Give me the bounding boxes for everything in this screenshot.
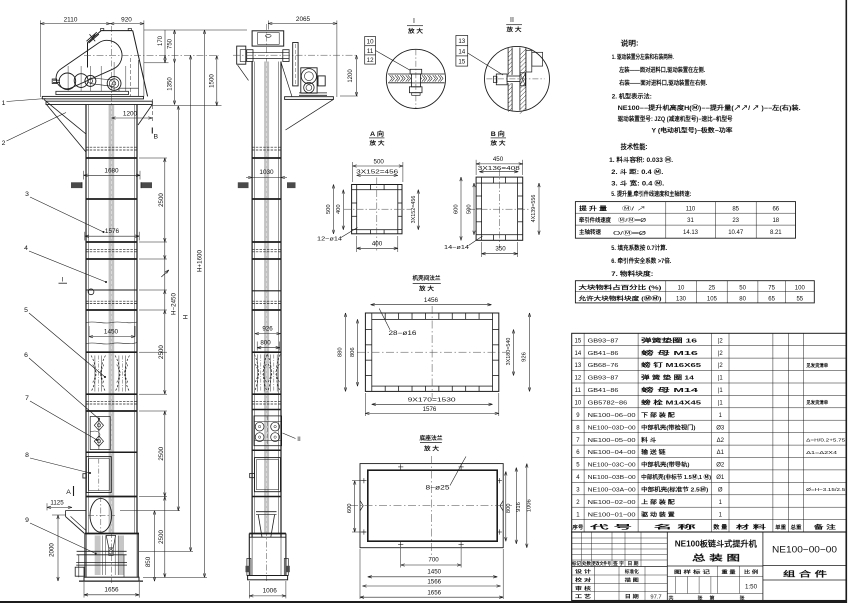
svg-text:重 量: 重 量 xyxy=(722,569,737,576)
svg-text:中部机壳(带导轨): 中部机壳(带导轨) xyxy=(641,461,690,469)
svg-text:螃 钉 M16X65: 螃 钉 M16X65 xyxy=(641,361,701,369)
svg-text:第: 第 xyxy=(710,594,715,601)
svg-text:螃 栓 M14X45: 螃 栓 M14X45 xyxy=(641,399,701,407)
svg-text:名 称: 名 称 xyxy=(654,523,697,531)
svg-text:中部机壳(标准节 2.5Ⓜ): 中部机壳(标准节 2.5Ⓜ) xyxy=(641,485,708,493)
svg-text:Y (电动机型号)−极数−功率: Y (电动机型号)−极数−功率 xyxy=(652,127,733,135)
svg-text:|2: |2 xyxy=(718,363,724,369)
svg-text:代 号: 代 号 xyxy=(587,523,634,531)
svg-text:8: 8 xyxy=(25,452,29,459)
svg-text:标记: 标记 xyxy=(571,560,581,567)
svg-text:3: 3 xyxy=(25,191,29,198)
svg-text:GB93−87: GB93−87 xyxy=(588,338,619,344)
svg-text:10.47: 10.47 xyxy=(728,230,744,236)
svg-text:NE100−06−00: NE100−06−00 xyxy=(588,413,636,419)
svg-text:1. 料斗容积: 0.033 Ⓜ.: 1. 料斗容积: 0.033 Ⓜ. xyxy=(609,156,673,164)
svg-text:500: 500 xyxy=(466,204,472,214)
svg-text:926: 926 xyxy=(522,352,528,362)
svg-text:II: II xyxy=(510,17,514,24)
svg-text:放 大: 放 大 xyxy=(489,139,505,147)
svg-text:14: 14 xyxy=(575,351,582,357)
svg-text:提 升 量: 提 升 量 xyxy=(579,204,607,212)
svg-text:B: B xyxy=(154,134,159,141)
svg-text:50: 50 xyxy=(739,285,746,291)
svg-text:500: 500 xyxy=(374,159,385,166)
svg-text:9: 9 xyxy=(25,517,29,524)
svg-text:500: 500 xyxy=(326,204,332,214)
svg-text:NE100−03A−00: NE100−03A−00 xyxy=(588,487,636,493)
svg-text:13: 13 xyxy=(458,38,465,45)
svg-text:底座法兰: 底座法兰 xyxy=(420,434,443,442)
svg-text:描 图: 描 图 xyxy=(625,577,639,584)
svg-text:螃 母 M16: 螃 母 M16 xyxy=(641,349,698,357)
svg-text:1500: 1500 xyxy=(209,74,216,88)
svg-text:1006: 1006 xyxy=(527,499,533,512)
svg-text:NE100−01−00: NE100−01−00 xyxy=(588,512,636,518)
svg-text:输 送 链: 输 送 链 xyxy=(641,448,666,456)
svg-text:总重: 总重 xyxy=(791,523,803,531)
svg-text:数 量: 数 量 xyxy=(713,523,728,531)
svg-text:NE100板链斗式提升机: NE100板链斗式提升机 xyxy=(675,539,757,549)
svg-text:2500: 2500 xyxy=(158,345,165,359)
svg-text:设 计: 设 计 xyxy=(575,568,591,575)
svg-text:2500: 2500 xyxy=(158,446,165,460)
svg-text:75: 75 xyxy=(768,285,775,291)
svg-text:大块物料占百分比 (%): 大块物料占百分比 (%) xyxy=(579,283,662,291)
svg-text:10: 10 xyxy=(367,39,374,46)
svg-text:I: I xyxy=(413,18,415,25)
svg-text:B 向: B 向 xyxy=(491,130,505,138)
svg-text:料 斗: 料 斗 xyxy=(641,436,657,444)
svg-text:130: 130 xyxy=(676,296,687,302)
svg-text:螃 母 M14: 螃 母 M14 xyxy=(641,386,700,394)
svg-text:Δ=H/0.2+5.75: Δ=H/0.2+5.75 xyxy=(806,437,845,443)
svg-text:1. 驱动装置分左装和右装两种.: 1. 驱动装置分左装和右装两种. xyxy=(612,53,674,61)
svg-text:350: 350 xyxy=(495,245,506,252)
svg-text:允许大块物料块度 (ⓂⓂ): 允许大块物料块度 (ⓂⓂ) xyxy=(577,294,662,302)
svg-text:技术性能:: 技术性能: xyxy=(621,142,648,151)
svg-text:I: I xyxy=(62,277,64,284)
svg-text:Ⓜ/ ↗: Ⓜ/ ↗ xyxy=(622,204,646,212)
svg-text:65: 65 xyxy=(768,296,775,302)
svg-text:更改文件号: 更改文件号 xyxy=(592,560,611,567)
svg-text:A 向: A 向 xyxy=(370,130,384,138)
svg-text:3X180=540: 3X180=540 xyxy=(506,338,512,366)
svg-text:Δ2: Δ2 xyxy=(717,438,725,444)
svg-text:3. 斗 宽: 0.4 Ⓜ.: 3. 斗 宽: 0.4 Ⓜ. xyxy=(611,180,664,188)
svg-text:55: 55 xyxy=(796,296,803,302)
svg-text:工 艺: 工 艺 xyxy=(575,593,591,600)
svg-text:2500: 2500 xyxy=(158,530,165,544)
svg-text:25: 25 xyxy=(709,285,716,291)
svg-text:3X152=456: 3X152=456 xyxy=(356,169,398,175)
svg-text:110: 110 xyxy=(686,206,696,212)
svg-text:15: 15 xyxy=(458,59,465,66)
svg-text:Ø2: Ø2 xyxy=(716,463,725,469)
svg-text:组 合 件: 组 合 件 xyxy=(783,570,828,579)
svg-text:日 期: 日 期 xyxy=(625,593,639,600)
svg-text:|1: |1 xyxy=(718,401,724,407)
svg-text:3X136=408: 3X136=408 xyxy=(478,166,520,172)
svg-text:NE100−−提升机高度H(Ⓜ)−−提升量(↗↗/ ↗: NE100−−提升机高度H(Ⓜ)−−提升量(↗↗/ ↗ )−−左(右)装. xyxy=(618,104,801,112)
svg-text:600: 600 xyxy=(347,503,353,513)
svg-text:放 大: 放 大 xyxy=(368,139,384,147)
svg-text:1030: 1030 xyxy=(259,169,274,176)
svg-text:2: 2 xyxy=(2,140,6,147)
svg-text:2000: 2000 xyxy=(49,543,56,557)
svg-text:1456: 1456 xyxy=(424,297,439,304)
svg-text:28−ø16: 28−ø16 xyxy=(389,331,418,337)
svg-text:总 装 图: 总 装 图 xyxy=(692,553,740,563)
svg-text:H−2450: H−2450 xyxy=(170,293,177,315)
svg-text:放 大: 放 大 xyxy=(505,26,521,34)
svg-text:NE100−03C−00: NE100−03C−00 xyxy=(588,463,636,469)
svg-text:驱动装置型号: JZQ (减速机型号)−速比−机型号: 驱动装置型号: JZQ (减速机型号)−速比−机型号 xyxy=(618,115,733,123)
svg-text:II: II xyxy=(297,436,301,443)
svg-text:张: 张 xyxy=(698,594,703,601)
svg-text:机壳间法兰: 机壳间法兰 xyxy=(413,274,441,282)
svg-text:2. 斗 距: 0.4 Ⓜ.: 2. 斗 距: 0.4 Ⓜ. xyxy=(611,168,663,176)
svg-text:GB68−76: GB68−76 xyxy=(588,363,619,369)
svg-text:7. 物料块度:: 7. 物料块度: xyxy=(611,270,653,278)
svg-text:2. 机型表示法:: 2. 机型表示法: xyxy=(612,92,652,100)
svg-text:926: 926 xyxy=(262,325,273,332)
svg-text:见发货清单: 见发货清单 xyxy=(806,399,828,406)
svg-text:170: 170 xyxy=(158,35,164,46)
svg-text:600: 600 xyxy=(454,204,460,214)
svg-text:1450: 1450 xyxy=(427,569,441,576)
svg-text:10: 10 xyxy=(575,401,582,407)
svg-text:下 部 装 配: 下 部 装 配 xyxy=(641,411,675,419)
svg-text:14−ø14: 14−ø14 xyxy=(444,245,470,251)
svg-text:97.7: 97.7 xyxy=(650,594,661,600)
svg-text:1656: 1656 xyxy=(104,586,119,593)
svg-text:NE100−03D−00: NE100−03D−00 xyxy=(588,425,636,431)
svg-text:1200: 1200 xyxy=(348,69,354,83)
svg-text:标准化: 标准化 xyxy=(624,568,639,575)
svg-text:31: 31 xyxy=(687,218,694,224)
svg-text:H+1600: H+1600 xyxy=(196,250,203,272)
svg-text:1:50: 1:50 xyxy=(745,584,758,591)
svg-text:23: 23 xyxy=(732,218,739,224)
svg-text:比 例: 比 例 xyxy=(744,569,759,576)
svg-text:GB5782−86: GB5782−86 xyxy=(588,401,628,407)
svg-text:NE100−04−00: NE100−04−00 xyxy=(588,450,636,456)
svg-text:3X152=456: 3X152=456 xyxy=(411,196,417,224)
svg-text:GB93−87: GB93−87 xyxy=(588,376,619,382)
svg-text:放 大: 放 大 xyxy=(418,284,434,292)
svg-text:7: 7 xyxy=(25,395,29,402)
svg-text:700: 700 xyxy=(428,557,439,564)
svg-text:750: 750 xyxy=(168,38,174,49)
svg-text:2065: 2065 xyxy=(296,16,311,23)
svg-text:850: 850 xyxy=(145,556,152,567)
svg-text:审 核: 审 核 xyxy=(575,585,591,592)
svg-text:驱 动 装 置: 驱 动 装 置 xyxy=(641,510,675,518)
svg-text:800: 800 xyxy=(506,503,512,513)
svg-text:2500: 2500 xyxy=(158,193,165,207)
svg-text:105: 105 xyxy=(707,296,718,302)
svg-text:1006: 1006 xyxy=(263,588,278,595)
svg-text:|1: |1 xyxy=(718,388,724,394)
svg-text:4X139=556: 4X139=556 xyxy=(531,195,537,223)
svg-text:1680: 1680 xyxy=(104,168,119,175)
svg-text:800: 800 xyxy=(260,340,271,347)
svg-text:A: A xyxy=(66,489,71,496)
svg-text:1200: 1200 xyxy=(123,111,138,118)
svg-text:NE100−03B−00: NE100−03B−00 xyxy=(588,475,636,481)
svg-text:13: 13 xyxy=(575,363,582,369)
svg-text:450: 450 xyxy=(493,156,504,163)
svg-text:880: 880 xyxy=(338,347,344,357)
svg-text:1350: 1350 xyxy=(168,77,174,91)
svg-text:校 对: 校 对 xyxy=(575,577,591,584)
svg-text:8−ø25: 8−ø25 xyxy=(426,485,451,491)
svg-text:85: 85 xyxy=(732,206,739,212)
svg-text:Ø1: Ø1 xyxy=(716,475,725,481)
svg-text:|1: |1 xyxy=(718,376,724,382)
svg-text:12−ø14: 12−ø14 xyxy=(317,237,343,243)
svg-text:14: 14 xyxy=(458,48,465,55)
svg-text:14.13: 14.13 xyxy=(683,230,699,236)
svg-text:806: 806 xyxy=(350,347,356,357)
svg-text:NE100−05−00: NE100−05−00 xyxy=(588,438,636,444)
svg-text:1656: 1656 xyxy=(427,589,441,596)
svg-text:左装——面对进料口,驱动装置在左侧.: 左装——面对进料口,驱动装置在左侧. xyxy=(618,66,705,74)
svg-text:1125: 1125 xyxy=(50,500,64,507)
svg-text:右装——面对进料口,驱动装置在右侧.: 右装——面对进料口,驱动装置在右侧. xyxy=(618,79,707,87)
svg-text:图 样 标 记: 图 样 标 记 xyxy=(674,569,711,576)
svg-text:12: 12 xyxy=(367,57,374,64)
svg-text:Ⓜ/Ⓜ═Ø: Ⓜ/Ⓜ═Ø xyxy=(618,216,647,224)
svg-text:中部机壳(带检视门): 中部机壳(带检视门) xyxy=(641,423,696,431)
svg-text:牵引件线速度: 牵引件线速度 xyxy=(579,216,611,224)
svg-text:见发货清单: 见发货清单 xyxy=(806,362,828,369)
svg-text:GB41−86: GB41−86 xyxy=(588,388,619,394)
svg-text:Δ1: Δ1 xyxy=(717,450,725,456)
svg-text:80: 80 xyxy=(739,296,746,302)
svg-text:10: 10 xyxy=(678,285,685,291)
svg-text:5: 5 xyxy=(24,307,28,314)
svg-text:O/Ⓜ═Ø: O/Ⓜ═Ø xyxy=(613,229,647,237)
svg-text:1566: 1566 xyxy=(427,578,441,585)
svg-text:5. 填充系数按 0.7计算.: 5. 填充系数按 0.7计算. xyxy=(611,244,667,252)
svg-text:日 期: 日 期 xyxy=(628,560,639,567)
svg-text:Ø3: Ø3 xyxy=(716,425,725,431)
svg-text:920: 920 xyxy=(121,17,132,24)
svg-text:弹 簧 垫 圈 14: 弹 簧 垫 圈 14 xyxy=(641,374,695,382)
svg-text:400: 400 xyxy=(336,204,342,214)
svg-text:Δ1=Δ2X4: Δ1=Δ2X4 xyxy=(806,450,837,456)
svg-text:2110: 2110 xyxy=(64,17,78,24)
svg-text:18: 18 xyxy=(772,218,779,224)
svg-text:11: 11 xyxy=(575,388,582,394)
svg-text:1: 1 xyxy=(2,100,6,107)
svg-text:6: 6 xyxy=(24,352,28,359)
svg-text:916: 916 xyxy=(516,502,522,512)
svg-text:主轴转速: 主轴转速 xyxy=(579,228,601,236)
svg-text:上 部 装 配: 上 部 装 配 xyxy=(641,498,675,506)
svg-text:1450: 1450 xyxy=(104,328,119,335)
svg-text:|2: |2 xyxy=(718,351,724,357)
svg-text:签 字: 签 字 xyxy=(612,560,624,567)
svg-text:Ø=H−3.15/2.5: Ø=H−3.15/2.5 xyxy=(806,487,845,493)
svg-text:共: 共 xyxy=(669,594,674,601)
svg-text:GB41−86: GB41−86 xyxy=(588,351,619,357)
svg-text:Ø: Ø xyxy=(718,487,723,493)
svg-text:单重: 单重 xyxy=(775,523,787,531)
svg-text:1576: 1576 xyxy=(423,406,437,413)
svg-text:材 料: 材 料 xyxy=(736,523,767,531)
svg-text:1576: 1576 xyxy=(105,228,120,235)
svg-text:6. 牵引件安全系数 >7倍.: 6. 牵引件安全系数 >7倍. xyxy=(611,257,671,265)
svg-text:处数: 处数 xyxy=(581,560,591,567)
svg-text:12: 12 xyxy=(575,376,582,382)
svg-text:放 大: 放 大 xyxy=(407,27,423,35)
svg-text:8.21: 8.21 xyxy=(770,230,782,236)
svg-text:|2: |2 xyxy=(718,338,724,344)
svg-text:400: 400 xyxy=(372,241,383,248)
svg-text:4: 4 xyxy=(24,245,28,252)
svg-text:9X170=1530: 9X170=1530 xyxy=(408,398,456,404)
svg-text:15: 15 xyxy=(575,338,582,344)
svg-text:NE100−00−00: NE100−00−00 xyxy=(772,545,837,555)
svg-text:放 大: 放 大 xyxy=(423,444,439,452)
svg-text:备 注: 备 注 xyxy=(812,523,836,531)
svg-text:66: 66 xyxy=(772,206,779,212)
svg-text:中部机壳(非标节 1.5Ⓜ,1 Ⓜ): 中部机壳(非标节 1.5Ⓜ,1 Ⓜ) xyxy=(641,473,711,481)
svg-text:11: 11 xyxy=(367,48,374,55)
svg-text:NE100−02−00: NE100−02−00 xyxy=(588,500,636,506)
svg-text:张: 张 xyxy=(740,594,745,601)
svg-text:说明:: 说明: xyxy=(621,39,639,48)
svg-text:弹簧垫圈 16: 弹簧垫圈 16 xyxy=(641,336,697,344)
svg-text:5. 提升量,牵引件线速度和主轴转速:: 5. 提升量,牵引件线速度和主轴转速: xyxy=(611,190,691,198)
svg-text:100: 100 xyxy=(795,285,806,291)
svg-text:H: H xyxy=(183,315,190,319)
svg-text:序号: 序号 xyxy=(572,523,583,531)
